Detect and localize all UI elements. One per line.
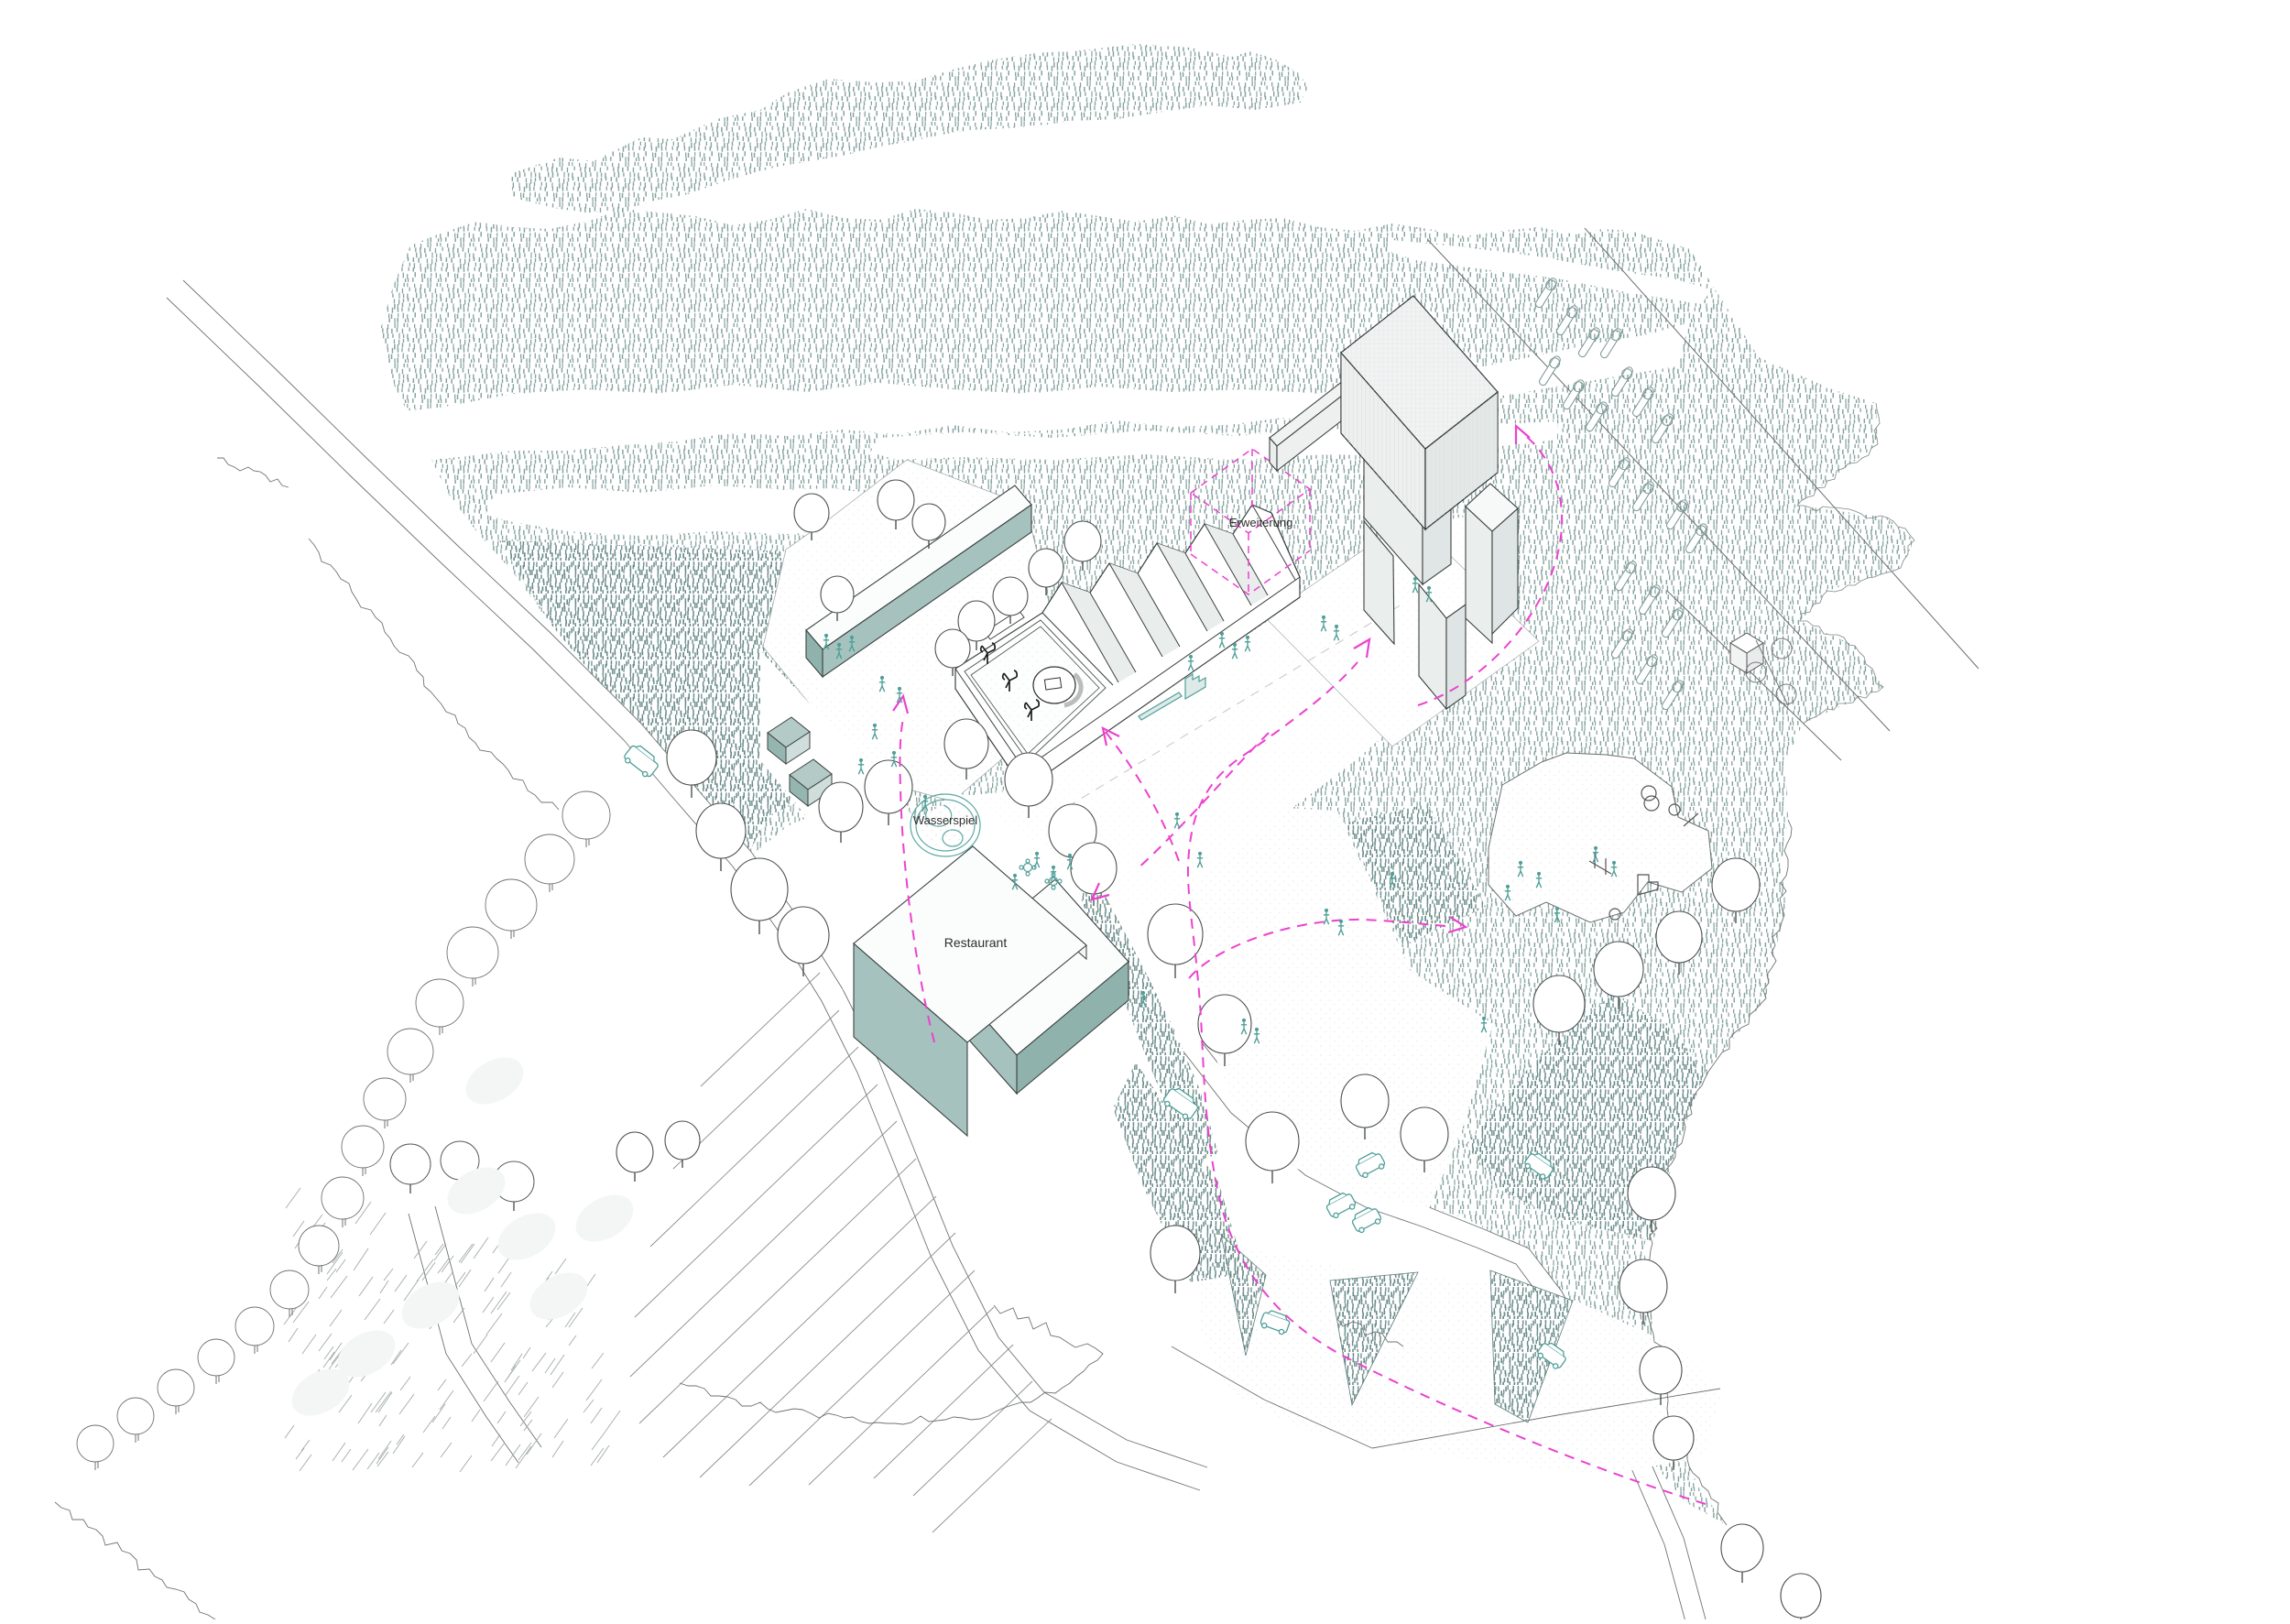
svg-text:Erweiterung: Erweiterung <box>1229 516 1292 529</box>
svg-text:Wasserspiel: Wasserspiel <box>913 813 977 827</box>
svg-text:Restaurant: Restaurant <box>944 935 1008 950</box>
